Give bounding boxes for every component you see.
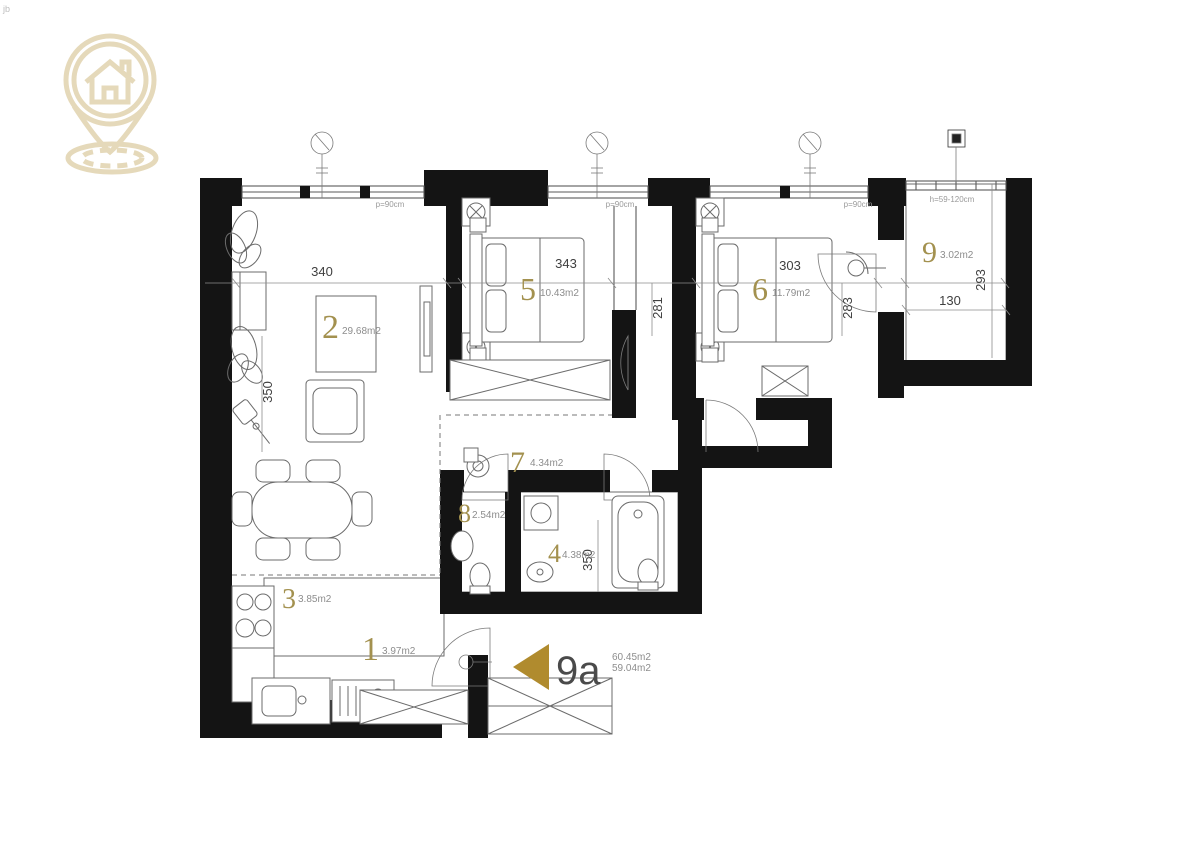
room-label-1: 1 3.97m2 <box>362 631 416 668</box>
dim-room6-height: 283 <box>840 297 855 319</box>
sofa <box>232 272 266 330</box>
svg-text:4.38m2: 4.38m2 <box>562 550 596 561</box>
nightstand <box>702 348 718 362</box>
svg-text:11.79m2: 11.79m2 <box>772 288 811 299</box>
dining-table-set <box>232 460 372 560</box>
wardrobe5 <box>450 360 610 400</box>
axis-markers <box>311 130 965 198</box>
room-label-9: 9 3.02m2 <box>922 236 974 269</box>
svg-text:2.54m2: 2.54m2 <box>472 510 506 521</box>
dim-living-width: 340 <box>311 264 333 279</box>
unit-area-1: 60.45m2 <box>612 652 651 663</box>
unit-area-2: 59.04m2 <box>612 663 651 674</box>
wardrobe6 <box>762 366 808 396</box>
svg-text:29.68m2: 29.68m2 <box>342 326 381 337</box>
axis-square-marker <box>948 130 965 182</box>
window-room6 <box>710 186 868 198</box>
dim-left-height: 350 <box>260 381 275 403</box>
svg-text:3: 3 <box>282 584 296 615</box>
dim-terrace-width: 130 <box>939 293 961 308</box>
terrace-railing <box>906 181 1006 190</box>
dim-room5-height: 281 <box>650 297 665 319</box>
svg-text:3.97m2: 3.97m2 <box>382 646 416 657</box>
axis-bubble-2 <box>586 132 608 198</box>
svg-text:1: 1 <box>362 631 379 668</box>
note-window3: p=90cm <box>844 200 873 209</box>
tv <box>424 302 430 356</box>
bath4-fixtures <box>524 496 664 590</box>
sink-room6-corner <box>846 252 886 276</box>
room6-furniture <box>702 218 886 396</box>
axis-bubble-3 <box>799 132 821 198</box>
room-label-8: 8 2.54m2 <box>458 499 506 528</box>
svg-text:10.43m2: 10.43m2 <box>540 288 579 299</box>
svg-text:4: 4 <box>548 539 561 568</box>
svg-text:3.02m2: 3.02m2 <box>940 250 974 261</box>
window-living <box>242 186 424 198</box>
note-window2: p=90cm <box>606 200 635 209</box>
agency-logo <box>38 22 188 182</box>
unit-label: 9a <box>556 649 601 693</box>
svg-text:2: 2 <box>322 309 339 346</box>
terrace-floor-hatch <box>906 184 1006 362</box>
washing-machine <box>524 496 558 530</box>
stove <box>232 586 274 648</box>
svg-text:3.85m2: 3.85m2 <box>298 594 332 605</box>
room5-furniture <box>450 218 610 400</box>
svg-text:8: 8 <box>458 499 471 528</box>
dim-room5-width: 343 <box>555 256 577 271</box>
nightstand <box>702 218 718 232</box>
axis-bubble-1 <box>311 132 333 198</box>
svg-text:7: 7 <box>510 446 525 479</box>
svg-text:6: 6 <box>752 271 768 307</box>
nightstand <box>470 218 486 232</box>
dim-room6-width: 303 <box>779 258 801 273</box>
svg-text:9: 9 <box>922 236 937 269</box>
door-room6 <box>706 400 758 452</box>
corner-watermark: jb <box>2 4 10 14</box>
floor-lamp <box>232 399 277 449</box>
dim-terrace-height: 293 <box>973 269 988 291</box>
door-bath4 <box>604 454 650 500</box>
svg-text:4.34m2: 4.34m2 <box>530 458 564 469</box>
note-terrace: h=59-120cm <box>930 195 975 204</box>
room-label-3: 3 3.85m2 <box>282 584 332 615</box>
note-window1: p=90cm <box>376 200 405 209</box>
toilet-4 <box>638 559 658 590</box>
svg-text:5: 5 <box>520 271 536 307</box>
armchair <box>306 380 364 442</box>
room-label-2: 2 29.68m2 <box>322 309 381 346</box>
living-room-furniture <box>221 207 432 560</box>
window-room5 <box>548 186 648 198</box>
toilet-8 <box>470 563 490 594</box>
floor-plan-page: jb <box>0 0 1200 854</box>
house-icon <box>86 62 134 102</box>
sink-kitchen <box>252 678 330 724</box>
shaft-small <box>360 690 468 724</box>
